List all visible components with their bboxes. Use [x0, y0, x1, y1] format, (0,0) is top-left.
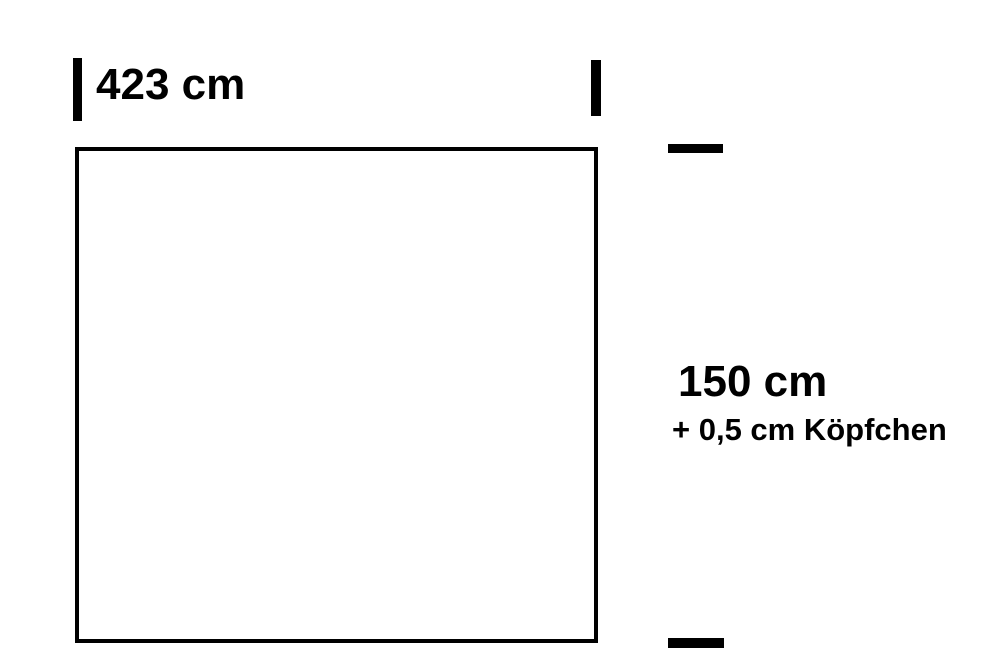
width-dimension-tick-right: [591, 60, 601, 116]
width-dimension-tick-left: [73, 58, 82, 121]
width-dimension-label: 423 cm: [96, 63, 245, 107]
dimension-diagram: 423 cm 150 cm + 0,5 cm Köpfchen: [0, 0, 998, 665]
fabric-outline-rectangle: [75, 147, 598, 643]
height-dimension-tick-top: [668, 144, 723, 153]
height-dimension-label: 150 cm: [678, 360, 827, 404]
height-dimension-tick-bottom: [668, 638, 724, 648]
height-dimension-note: + 0,5 cm Köpfchen: [672, 414, 947, 445]
